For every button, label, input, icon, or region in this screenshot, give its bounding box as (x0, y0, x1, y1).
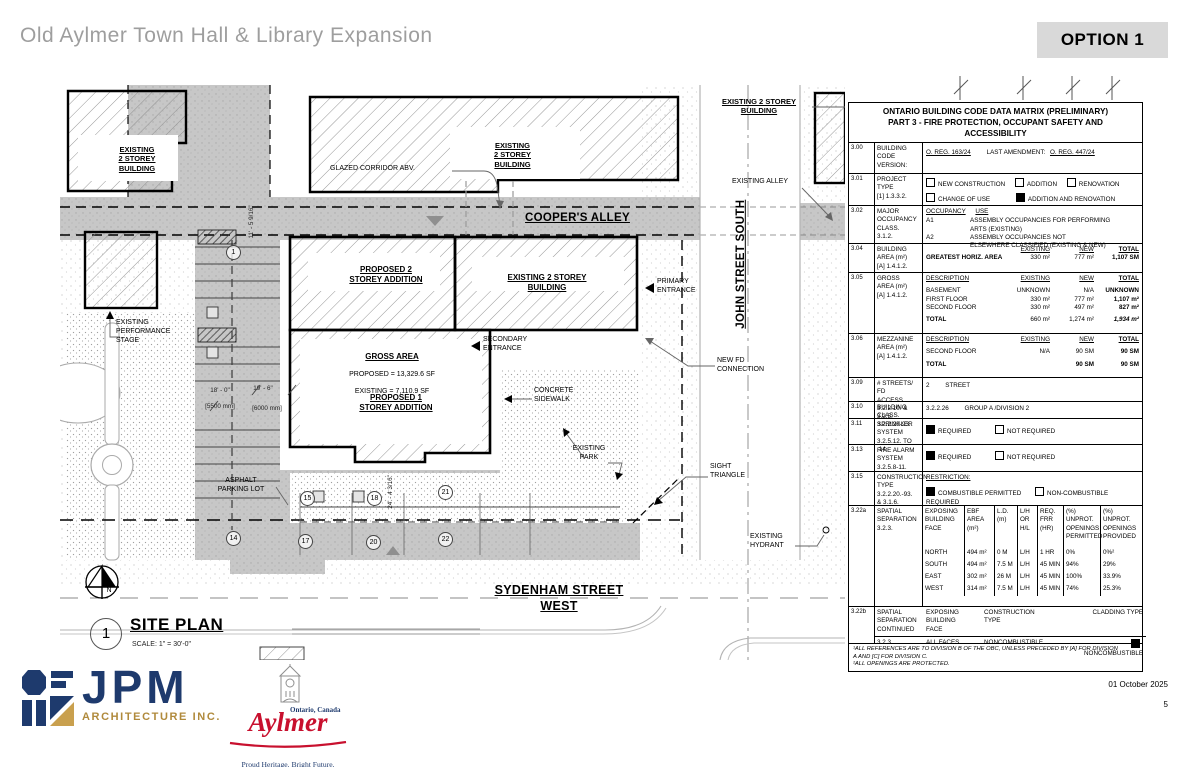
label-coopers-alley: COOPER'S ALLEY (515, 211, 640, 225)
row-num: 3.09 (849, 378, 875, 401)
gross-area-proposed: PROPOSED = 13,329.6 SF (308, 371, 476, 380)
cell: N/A (1004, 348, 1050, 356)
cell: BASEMENT (926, 287, 1004, 295)
row-label: FIRE ALARM SYSTEM 3.2.5.8-11. (875, 445, 923, 471)
aylmer-swoosh (228, 741, 348, 749)
obc-row-302: 3.02 MAJOR OCCUPANCY CLASS. 3.1.2. OCCUP… (849, 205, 1142, 243)
obc-row-315: 3.15 CONSTRUCTION TYPE 3.2.2.20.-93. & 3… (849, 471, 1142, 505)
row-num: 3.06 (849, 334, 875, 377)
label-concrete-sidewalk: CONCRETE SIDEWALK (534, 387, 598, 405)
dim-6000mm: [6000 mm] (242, 405, 292, 413)
detail-number: 1 (90, 618, 122, 650)
obc-row-300: 3.00 BUILDING CODE VERSION: O. REG. 163/… (849, 142, 1142, 173)
cell: 777 m² (1050, 296, 1094, 304)
row-label: BUILDING CODE VERSION: (875, 143, 923, 173)
row-num: 3.10 (849, 402, 875, 418)
col-total: TOTAL (1094, 246, 1139, 254)
sheet-date: 01 October 2025 (1020, 680, 1168, 689)
col-unprot-provided: (%) UNPROT. OPENINGS PROVIDED (1101, 506, 1142, 543)
aylmer-tower-icon (228, 664, 348, 708)
opt-label: REQUIRED (938, 428, 971, 435)
obc-row-311: 3.11 SPRINKLER SYSTEM 3.2.5.12. TO .14. … (849, 418, 1142, 444)
checkbox-change-of-use (926, 193, 935, 202)
stall-21: 21 (438, 485, 453, 500)
checkbox-firealarm-required (926, 451, 935, 460)
aylmer-logo: Ontario, Canada Aylmer Proud Heritage. B… (228, 664, 348, 767)
site-plan-scale: SCALE: 1" = 30'-0" (132, 641, 191, 648)
checkbox-sprinkler-required (926, 425, 935, 434)
dim-18ft: 18' - 0" (198, 387, 242, 395)
cell: 494 m² (965, 543, 995, 559)
page-number: 5 (1020, 700, 1168, 709)
cell: 827 m² (1094, 304, 1139, 312)
class-group: GROUP A /DIVISION 2 (965, 405, 1030, 412)
option-badge: OPTION 1 (1037, 22, 1168, 58)
label-existing-building-top-right: EXISTING 2 STOREY BUILDING (703, 97, 815, 116)
aylmer-tagline: Proud Heritage. Bright Future. (228, 760, 348, 767)
row-num: 3.00 (849, 143, 875, 173)
row-label: PROJECT TYPE [1] 1.3.3.2. (875, 174, 923, 205)
total-val (1004, 361, 1050, 369)
obc-row-305: 3.05 GROSS AREA (m²) [A] 1.4.1.2. DESCRI… (849, 272, 1142, 333)
obc-title: ONTARIO BUILDING CODE DATA MATRIX (PRELI… (849, 103, 1142, 142)
cell: FIRST FLOOR (926, 296, 1004, 304)
label-existing-building-top-middle: EXISTING 2 STOREY BUILDING (460, 141, 565, 169)
total-val: 1,934 m² (1094, 316, 1139, 324)
opt-label: ADDITION (1027, 181, 1057, 188)
label-existing-building-top-left: EXISTING 2 STOREY BUILDING (87, 145, 187, 173)
label-performance-stage: EXISTING PERFORMANCE STAGE (116, 319, 210, 345)
col-ld: L.D. (m) (995, 506, 1018, 543)
label-existing-main: EXISTING 2 STOREY BUILDING (478, 273, 616, 293)
checkbox-noncombustible-required (1035, 487, 1044, 496)
label-existing-hydrant: EXISTING HYDRANT (750, 533, 812, 551)
opt-label: RENOVATION (1079, 181, 1120, 188)
dim-5500mm: [5500 mm] (195, 403, 245, 411)
stall-15: 15 (300, 491, 315, 506)
label-proposed-2-storey: PROPOSED 2 STOREY ADDITION (321, 265, 451, 285)
cell: L/H (1018, 543, 1038, 559)
cell: L/H (1018, 559, 1038, 571)
cell: 7.5 M (995, 583, 1018, 595)
col-ebf-area: EBF AREA (m²) (965, 506, 995, 543)
total-label: TOTAL (926, 361, 1004, 369)
col-new: NEW (1050, 275, 1094, 283)
obc-row-322a: 3.22a SPATIAL SEPARATION 3.2.3. EXPOSING… (849, 505, 1142, 606)
col-total: TOTAL (1094, 336, 1139, 344)
row-label: BUILDING AREA (m²) [A] 1.4.1.2. (875, 244, 923, 272)
checkbox-new-construction (926, 178, 935, 187)
total-val: 1,274 m² (1050, 316, 1094, 324)
opt-label: NEW CONSTRUCTION (938, 181, 1005, 188)
cell: 1,107 m² (1094, 296, 1139, 304)
cell: 1 HR (1038, 543, 1064, 559)
north-label: N (104, 587, 114, 596)
cell: WEST (923, 583, 965, 595)
opt-label: NOT REQUIRED (1007, 428, 1055, 435)
obc-row-301: 3.01 PROJECT TYPE [1] 1.3.3.2. NEW CONST… (849, 173, 1142, 205)
opt-label: COMBUSTIBLE PERMITTED (938, 490, 1021, 497)
row-num: 3.04 (849, 244, 875, 272)
row-num: 3.13 (849, 445, 875, 471)
label-sight-triangle: SIGHT TRIANGLE (710, 463, 772, 481)
stall-17: 17 (298, 534, 313, 549)
page-title: Old Aylmer Town Hall & Library Expansion (20, 24, 433, 48)
stall-22: 22 (438, 532, 453, 547)
cell: 45 MIN (1038, 583, 1064, 595)
obc-row-306: 3.06 MEZZANINE AREA (m²) [A] 1.4.1.2. DE… (849, 333, 1142, 377)
cell: 302 m² (965, 571, 995, 583)
label-asphalt-parking-lot: ASPHALT PARKING LOT (200, 477, 282, 495)
cell: 90 SM (1094, 348, 1139, 356)
cell: 494 m² (965, 559, 995, 571)
col-lh-hl: L/H OR H/L (1018, 506, 1038, 543)
checkbox-sprinkler-not-required (995, 425, 1004, 434)
col-existing: EXISTING (1004, 275, 1050, 283)
col-cladding-type: CLADDING TYPE (1084, 609, 1143, 634)
val: 777 m² (1050, 254, 1094, 262)
cell: L/H (1018, 571, 1038, 583)
cell: SOUTH (923, 559, 965, 571)
col-exposing-face: EXPOSING BUILDING FACE (926, 609, 984, 634)
dim-24ft: 24' - 4 3/16" (387, 457, 395, 527)
col-construction-type: CONSTRUCTION TYPE (984, 609, 1084, 634)
dim-11ft: 11' - 5 9/16" (248, 187, 256, 257)
val: 330 m² (1004, 254, 1050, 262)
checkbox-combustible-permitted (926, 487, 935, 496)
cell: SECOND FLOOR (926, 304, 1004, 312)
col-total: TOTAL (1094, 275, 1139, 283)
cell: L/H (1018, 583, 1038, 595)
cell: 29% (1101, 559, 1142, 571)
row-label: SPATIAL SEPARATION CONTINUED (875, 607, 923, 636)
col-use: USE (975, 208, 988, 215)
sheet: Old Aylmer Town Hall & Library Expansion… (0, 0, 1197, 767)
code-version: O. REG. 163/24 (926, 149, 971, 156)
row-num: 3.22a (849, 506, 875, 606)
cell: 45 MIN (1038, 571, 1064, 583)
cell: 497 m² (1050, 304, 1094, 312)
row-label: GROSS AREA (m²) [A] 1.4.1.2. (875, 273, 923, 333)
total-val: 660 m² (1004, 316, 1050, 324)
opt-label: ADDITION AND RENOVATION (1028, 196, 1115, 203)
cell: 90 SM (1050, 348, 1094, 356)
row-label: MEZZANINE AREA (m²) [A] 1.4.1.2. (875, 334, 923, 377)
label-secondary-entrance: SECONDARY ENTRANCE (483, 336, 555, 354)
jpm-logo: JPM ARCHITECTURE INC. (14, 666, 221, 728)
obc-row-322b: 3.22b SPATIAL SEPARATION CONTINUED EXPOS… (849, 606, 1142, 643)
jpm-subtitle: ARCHITECTURE INC. (82, 711, 221, 723)
cell: 0% (1064, 543, 1101, 559)
cell: 100% (1064, 571, 1101, 583)
checkbox-addition-renovation (1016, 193, 1025, 202)
col-description: DESCRIPTION (926, 336, 1004, 344)
cell: SECOND FLOOR (926, 348, 1004, 356)
col-exposing-face: EXPOSING BUILDING FACE (923, 506, 965, 543)
stall-14: 14 (226, 531, 241, 546)
row-num: 3.01 (849, 174, 875, 205)
row-label: CONSTRUCTION TYPE 3.2.2.20.-93. & 3.1.6. (875, 472, 923, 505)
cell: NORTH (923, 543, 965, 559)
cell: 0 M (995, 543, 1018, 559)
row-num: 3.05 (849, 273, 875, 333)
cell: 330 m² (1004, 296, 1050, 304)
checkbox-addition (1015, 178, 1024, 187)
jpm-logo-mark (14, 666, 76, 728)
row-num: 3.02 (849, 206, 875, 243)
stall-18: 18 (367, 491, 382, 506)
aylmer-region: Ontario, Canada (290, 706, 341, 714)
label-sydenham-street: SYDENHAM STREET WEST (478, 583, 640, 614)
label-existing-park: EXISTING PARK (560, 445, 618, 463)
site-plan-title: SITE PLAN (130, 615, 223, 635)
building-existing-top-right (815, 93, 845, 183)
gross-area-title: GROSS AREA (308, 352, 476, 362)
obc-row-304: 3.04 BUILDING AREA (m²) [A] 1.4.1.2. EXI… (849, 243, 1142, 272)
dim-19ft: 19' - 6" (242, 385, 284, 393)
row-label: SPATIAL SEPARATION 3.2.3. (875, 506, 923, 606)
obc-data-matrix: ONTARIO BUILDING CODE DATA MATRIX (PRELI… (848, 102, 1143, 672)
row-label: MAJOR OCCUPANCY CLASS. 3.1.2. (875, 206, 923, 243)
cell: 26 M (995, 571, 1018, 583)
obc-row-309: 3.09 # STREETS/ FD ACCESS 3.2.2.10. & 3.… (849, 377, 1142, 401)
col-req-frr: REQ. FRR (HR) (1038, 506, 1064, 543)
col-description: DESCRIPTION (926, 275, 1004, 283)
label-proposed-1-storey: PROPOSED 1 STOREY ADDITION (332, 393, 460, 413)
obc-row-313: 3.13 FIRE ALARM SYSTEM 3.2.5.8-11. REQUI… (849, 444, 1142, 471)
titleblock-rules (260, 629, 480, 660)
performance-stage-structure (85, 232, 157, 308)
keynote-1: 1 (226, 245, 241, 260)
site-plan: EXISTING 2 STOREY BUILDING EXISTING 2 ST… (60, 85, 845, 660)
obc-footnotes: ¹ALL REFERENCES ARE TO DIVISION B OF THE… (849, 644, 1142, 671)
use-a1: ASSEMBLY OCCUPANCIES FOR PERFORMING ARTS… (970, 217, 1139, 233)
col-existing: EXISTING (1004, 246, 1050, 254)
col-unprot-permitted: (%) UNPROT. OPENINGS PERMITTED (1064, 506, 1101, 543)
last-amendment-label: LAST AMENDMENT: (987, 149, 1046, 156)
cell: 0%² (1101, 543, 1142, 559)
restriction-heading: RESTRICTION: (926, 474, 1139, 482)
row-num: 3.22b (849, 607, 875, 643)
val: 1,107 SM (1094, 254, 1139, 262)
class-article: 3.2.2.26 (926, 405, 949, 412)
greatest-horiz-area: GREATEST HORIZ. AREA (926, 254, 1004, 262)
col-occupancy: OCCUPANCY (926, 208, 966, 215)
row-num: 3.11 (849, 419, 875, 444)
row-num: 3.15 (849, 472, 875, 505)
total-val: 90 SM (1094, 361, 1139, 369)
cell: UNKNOWN (1094, 287, 1139, 295)
cell: 74% (1064, 583, 1101, 595)
cell: 25.3% (1101, 583, 1142, 595)
col-existing: EXISTING (1004, 336, 1050, 344)
cell: 7.5 M (995, 559, 1018, 571)
label-primary-entrance: PRIMARY ENTRANCE (657, 278, 719, 296)
obc-row-310: 3.10 BUILDING CLASS. 3.2.2.20-93. 3.2.2.… (849, 401, 1142, 418)
streets-count: 2 (926, 382, 930, 389)
last-amendment-value: O. REG. 447/24 (1050, 149, 1095, 156)
total-val: 90 SM (1050, 361, 1094, 369)
streets-word: STREET (945, 382, 970, 389)
occ-a1: A1 (926, 217, 970, 233)
opt-label: REQUIRED (938, 454, 971, 461)
row-label: # STREETS/ FD ACCESS 3.2.2.10. & 3.2.5. (875, 378, 923, 401)
label-existing-alley: EXISTING ALLEY (720, 178, 800, 187)
cell: 45 MIN (1038, 559, 1064, 571)
checkbox-renovation (1067, 178, 1076, 187)
label-new-fd-connection: NEW FD CONNECTION (717, 357, 789, 375)
opt-label: CHANGE OF USE (938, 196, 990, 203)
cell: UNKNOWN (1004, 287, 1050, 295)
cell: EAST (923, 571, 965, 583)
stall-20: 20 (366, 535, 381, 550)
cell: N/A (1050, 287, 1094, 295)
col-new: NEW (1050, 246, 1094, 254)
row-label: BUILDING CLASS. 3.2.2.20-93. (875, 402, 923, 418)
cell: 330 m² (1004, 304, 1050, 312)
label-john-street-south: JOHN STREET SOUTH (734, 189, 748, 339)
total-label: TOTAL (926, 316, 1004, 324)
cell: 314 m² (965, 583, 995, 595)
row-label: SPRINKLER SYSTEM 3.2.5.12. TO .14. (875, 419, 923, 444)
property-ticks (850, 76, 1140, 100)
cell: 94% (1064, 559, 1101, 571)
checkbox-firealarm-not-required (995, 451, 1004, 460)
label-glazed-corridor: GLAZED CORRIDOR ABV. (330, 165, 450, 174)
cell: 33.9% (1101, 571, 1142, 583)
opt-label: NOT REQUIRED (1007, 454, 1055, 461)
jpm-name: JPM (82, 666, 221, 710)
col-new: NEW (1050, 336, 1094, 344)
